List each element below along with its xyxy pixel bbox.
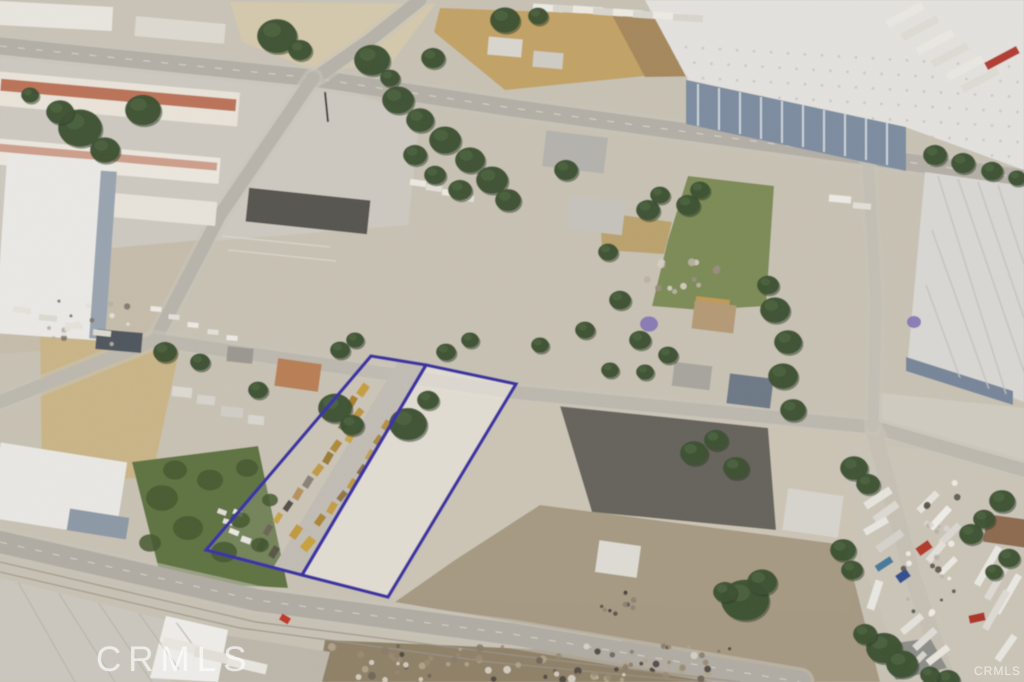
grain-overlay: [0, 0, 1024, 682]
aerial-photo: CRMLS CRMLS: [0, 0, 1024, 682]
aerial-scene: [0, 0, 1024, 682]
